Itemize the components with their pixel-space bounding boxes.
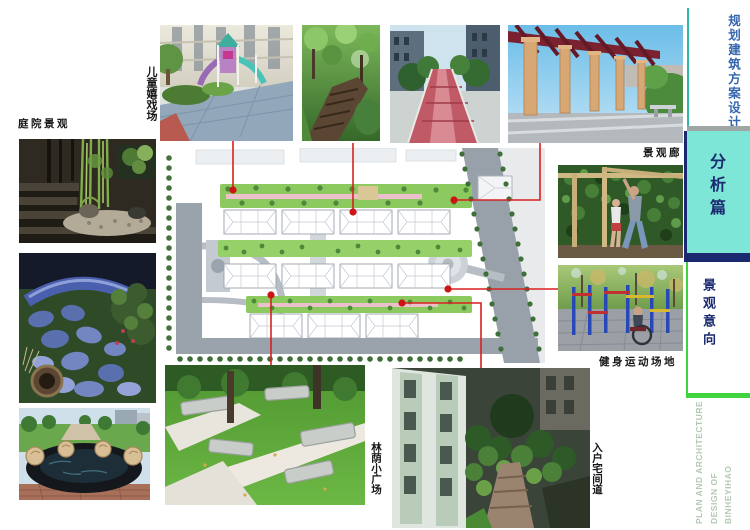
photo-courtyard: [19, 139, 156, 243]
caption-children-play: 儿童嬉戏场: [144, 66, 157, 121]
subsection-label: 景观意向: [699, 278, 718, 350]
photo-stone-paving-garden: [19, 253, 156, 403]
title-divider-line: [687, 8, 689, 128]
photo-boardwalk-garden: [302, 25, 380, 141]
footer-english-title: PLAN AND ARCHITECTURE DESIGN OF BINHEYIH…: [692, 396, 736, 524]
caption-gallery: 景观廊: [643, 145, 682, 160]
section-bottom-bar: [684, 253, 750, 262]
footer-line-1: PLAN AND ARCHITECTURE: [692, 396, 707, 524]
photo-fountain: [19, 408, 150, 500]
caption-fitness: 健身运动场地: [599, 354, 677, 369]
footer-line-2: DESIGN OF: [707, 396, 722, 524]
caption-entry-path: 入户宅间道: [590, 442, 603, 495]
section-label: 分析篇: [703, 153, 727, 222]
photo-red-walkway: [390, 25, 500, 143]
photo-hedge-trellis: [558, 165, 683, 258]
caption-shaded-plaza: 林荫小广场: [369, 442, 382, 495]
presentation-board: 庭院景观 儿童嬉戏场 景观廊 健身运动场地 林荫小广场 入户宅间道 规划建筑方案…: [0, 0, 750, 530]
photo-fitness-area: [558, 265, 683, 351]
caption-courtyard: 庭院景观: [18, 116, 70, 131]
subsection-side-line: [686, 262, 688, 393]
footer-line-3: BINHEYIHAO: [721, 396, 736, 524]
photo-children-playground: [160, 25, 293, 141]
photo-pergola-corridor: [508, 25, 683, 143]
section-block: 分析篇: [684, 131, 750, 253]
photo-entry-path: [392, 368, 590, 528]
project-type-title: 规划建筑方案设计: [726, 14, 740, 130]
site-plan: [162, 148, 545, 363]
photo-shaded-plaza: [165, 365, 365, 505]
